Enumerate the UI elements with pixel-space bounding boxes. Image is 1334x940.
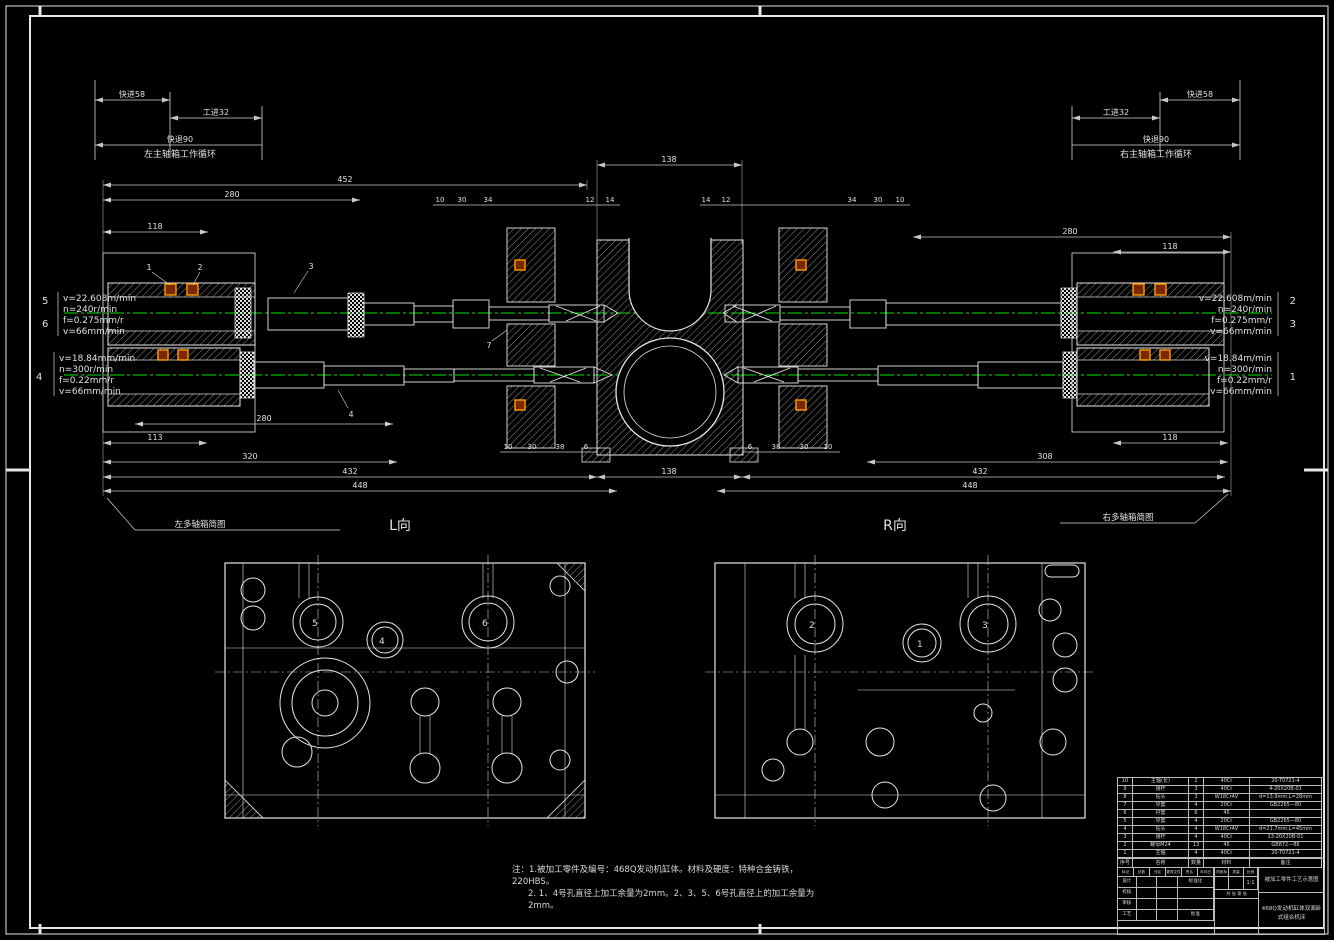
cad-drawing-sheet: 快进58 工进32 快退90 左主轴箱工作循环 快进58 工进32 快退90 右…: [0, 0, 1334, 940]
part-no: 3: [1118, 834, 1133, 842]
index-label-6: 6: [42, 319, 48, 330]
mark-cell: 更改文件号: [1166, 868, 1182, 876]
part-material: 45: [1204, 810, 1250, 818]
part-name: 主轴: [1133, 850, 1189, 858]
cycle-left-fast-forward: 快进58: [119, 89, 145, 99]
scale-label: 比例: [1244, 868, 1258, 876]
part-material: 20Cr: [1204, 818, 1250, 826]
param-line: v=22.608m/min: [1199, 294, 1272, 304]
params-right-lower: 1 v=18.84m/min n=300r/min f=0.22mm/r v=6…: [1205, 352, 1296, 397]
bearing-mark: [796, 400, 806, 410]
dim-448: 448: [352, 481, 367, 490]
part-remark: d=13.9mm,L=28mm: [1250, 794, 1322, 802]
cycle-right-work-feed: 工进32: [1103, 108, 1129, 117]
part-material: 20Cr: [1204, 802, 1250, 810]
part-no: 10: [1118, 778, 1133, 786]
bearing-mark: [1155, 284, 1166, 295]
bearing-mark: [1140, 350, 1150, 360]
dim-cluster: 6: [584, 443, 589, 451]
section-view-left: 5 4 6: [215, 555, 595, 826]
dim-452: 452: [337, 175, 352, 184]
part-remark: 20-T0721-4: [1250, 850, 1322, 858]
sig-label: 校核: [1118, 888, 1137, 898]
part-qty: 4: [1189, 850, 1204, 858]
part-remark: GB872—86: [1250, 842, 1322, 850]
dim-cluster: 38: [556, 443, 565, 451]
dim-cluster: 30: [528, 443, 537, 451]
part-name: 接杆: [1133, 786, 1189, 794]
param-line: f=0.275mm/r: [63, 316, 124, 326]
hole-label-6: 6: [482, 619, 488, 629]
part-remark: 4-20X20B-01: [1250, 786, 1322, 794]
dim-cluster: 10: [504, 443, 513, 451]
header-no: 序号: [1118, 859, 1133, 868]
part-name: 螺母M24: [1133, 842, 1189, 850]
param-line: v=66mm/min: [59, 387, 121, 397]
dim-cluster: 10: [824, 443, 833, 451]
bearing-mark: [178, 350, 188, 360]
bearing-mark: [158, 350, 168, 360]
part-qty: 2: [1189, 778, 1204, 786]
bearing-mark: [1160, 350, 1170, 360]
cycle-right-caption: 右主轴箱工作循环: [1120, 148, 1192, 160]
param-line: f=0.22mm/r: [59, 376, 114, 386]
mark-cell: 处数: [1134, 868, 1150, 876]
dim-cluster: 12: [722, 196, 731, 204]
param-line: v=18.84m/min: [1205, 354, 1272, 364]
scale-area: 阶段标记 质量 比例 1:1 共 张 第 张: [1215, 868, 1259, 934]
dim-cluster: 10: [896, 196, 905, 204]
param-line: n=300r/min: [59, 365, 113, 375]
sig-label: 工艺: [1118, 910, 1137, 920]
leader-label-1: 1: [146, 263, 151, 272]
param-line: n=240r/min: [1218, 305, 1272, 315]
dim-cluster: 12: [586, 196, 595, 204]
part-no: 4: [1118, 826, 1133, 834]
left-box-caption: 左多轴箱简图: [174, 519, 225, 530]
part-material: 40Cr: [1204, 786, 1250, 794]
dim-138-top: 138: [661, 155, 676, 164]
view-label-L: L向: [389, 518, 411, 534]
leader-label-2: 2: [197, 263, 202, 272]
dim-cluster: 34: [484, 196, 493, 204]
dim-320: 320: [242, 452, 257, 461]
note-line-1: 注：1.被加工零件及编号：468Q发动机缸体。材料及硬度：特种合金铸铁，220H…: [512, 864, 832, 888]
part-no: 6: [1118, 810, 1133, 818]
part-qty: 13: [1189, 842, 1204, 850]
param-line: n=300r/min: [1218, 365, 1272, 375]
part-remark: [1250, 810, 1322, 818]
dim-448r: 448: [962, 481, 977, 490]
dim-280r: 280: [1062, 227, 1077, 236]
param-line: v=66mm/min: [63, 327, 125, 337]
cycle-left-work-feed: 工进32: [203, 108, 229, 117]
sig-label: 审核: [1118, 899, 1137, 909]
workpiece-bore: [616, 338, 724, 446]
right-box-caption: 右多轴箱简图: [1102, 512, 1153, 523]
part-remark: GB2265—80: [1250, 802, 1322, 810]
bearing-mark: [165, 284, 176, 295]
cycle-right-fast-forward: 快进58: [1187, 89, 1213, 99]
dim-280: 280: [224, 190, 239, 199]
param-line: v=66mm/min: [1210, 327, 1272, 337]
drawing-title-line1: 被加工零件工艺示意图: [1259, 868, 1324, 893]
dim-308: 308: [1037, 452, 1052, 461]
mark-cell: 签名: [1182, 868, 1198, 876]
mass-label: 质量: [1229, 868, 1243, 876]
work-cycle-left: 快进58 工进32 快退90 左主轴箱工作循环: [95, 80, 262, 160]
part-name: 钻头: [1133, 794, 1189, 802]
dim-cluster: 38: [772, 443, 781, 451]
part-qty: 4: [1189, 826, 1204, 834]
dim-432r: 432: [972, 467, 987, 476]
part-no: 9: [1118, 786, 1133, 794]
part-no: 7: [1118, 802, 1133, 810]
parts-list-header: 序号 名称 数量 材料 备注: [1117, 858, 1325, 868]
fixture-plate-left: [507, 228, 555, 448]
part-qty: 3: [1189, 794, 1204, 802]
dim-118: 118: [147, 222, 162, 231]
part-no: 8: [1118, 794, 1133, 802]
part-remark: GB2265—80: [1250, 818, 1322, 826]
bearing-mark: [515, 400, 525, 410]
bearing-mark: [515, 260, 525, 270]
part-material: 45: [1204, 842, 1250, 850]
part-material: W18Cr4V: [1204, 826, 1250, 834]
part-material: W18Cr4V: [1204, 794, 1250, 802]
param-line: f=0.22mm/r: [1217, 376, 1272, 386]
work-cycle-right: 快进58 工进32 快退90 右主轴箱工作循环: [1072, 80, 1240, 160]
workpiece-cylinder-block: [582, 238, 758, 462]
part-qty: 3: [1189, 786, 1204, 794]
index-label-5: 5: [42, 296, 48, 307]
part-material: 40Cr: [1204, 834, 1250, 842]
params-right-upper: 2 3 v=22.608m/min n=240r/min f=0.275mm/r…: [1199, 292, 1296, 337]
hole-label-3: 3: [982, 621, 988, 631]
sig-label: 标准化: [1178, 877, 1214, 887]
fixture-plate-right: [779, 228, 827, 448]
part-no: 1: [1118, 850, 1133, 858]
dim-138-bottom: 138: [661, 467, 676, 476]
dim-cluster: 34: [848, 196, 857, 204]
sheet-count: 共 张 第 张: [1215, 890, 1258, 899]
mark-cell: 年月日: [1198, 868, 1214, 876]
params-left-upper: 5 6 v=22.608m/min n=240r/min f=0.275mm/r…: [42, 292, 136, 337]
part-remark: d=21.7mm,L=45mm: [1250, 826, 1322, 834]
hole-label-4: 4: [379, 637, 385, 647]
part-name: 导套: [1133, 802, 1189, 810]
title-block-main: 标记 处数 分区 更改文件号 签名 年月日 设计标准化 校核 审核 工艺批准 阶…: [1117, 868, 1325, 935]
bearing-mark: [187, 284, 198, 295]
part-remark: 13-20X20B-01: [1250, 834, 1322, 842]
part-material: 40Cr: [1204, 778, 1250, 786]
header-qty: 数量: [1189, 859, 1204, 868]
param-line: v=18.84mm/min: [59, 354, 135, 364]
dim-113: 113: [147, 433, 162, 442]
dim-280b: 280: [256, 414, 271, 423]
cycle-left-fast-return: 快退90: [167, 134, 193, 144]
scale-value: 1:1: [1244, 877, 1258, 889]
note-line-2: 2. 1、4号孔直径上加工余量为2mm。2、3、5、6号孔直径上的加工余量为2m…: [512, 888, 832, 912]
workpiece-u-opening: [629, 238, 711, 331]
leader-label-4: 4: [348, 410, 353, 419]
part-name: 接杆: [1133, 834, 1189, 842]
process-notes: 注：1.被加工零件及编号：468Q发动机缸体。材料及硬度：特种合金铸铁，220H…: [512, 864, 832, 912]
header-material: 材料: [1204, 859, 1250, 868]
part-name: 主轴(长): [1133, 778, 1189, 786]
cycle-right-fast-return: 快退90: [1143, 134, 1169, 144]
dim-cluster: 30: [458, 196, 467, 204]
index-label-2: 2: [1290, 296, 1296, 307]
view-label-R: R向: [883, 518, 907, 534]
title-block: 10主轴(长)240Cr20-T0721-4 9接杆340Cr4-20X20B-…: [1117, 777, 1325, 935]
header-remark: 备注: [1250, 859, 1322, 868]
part-qty: 4: [1189, 802, 1204, 810]
leader-caption-right: 右多轴箱简图: [1060, 494, 1228, 523]
dim-432: 432: [342, 467, 357, 476]
dim-cluster: 30: [874, 196, 883, 204]
index-label-1: 1: [1290, 372, 1296, 383]
part-material: 40Cr: [1204, 850, 1250, 858]
hole-label-1: 1: [917, 640, 923, 650]
part-no: 5: [1118, 818, 1133, 826]
hole-label-5: 5: [312, 619, 318, 629]
part-no: 2: [1118, 842, 1133, 850]
drawing-title-area: 被加工零件工艺示意图 468Q发动机缸体双面卧式组合机床: [1259, 868, 1325, 934]
param-line: f=0.275mm/r: [1211, 316, 1272, 326]
sig-label: 设计: [1118, 877, 1137, 887]
part-name: 导套: [1133, 818, 1189, 826]
sig-label: 批准: [1178, 910, 1214, 920]
hole-label-2: 2: [809, 621, 815, 631]
header-name: 名称: [1133, 859, 1189, 868]
section-view-right: 2 1 3: [705, 555, 1095, 826]
dim-cluster: 10: [436, 196, 445, 204]
dim-118r: 118: [1162, 242, 1177, 251]
part-name: 钻头: [1133, 826, 1189, 834]
stage-label: 阶段标记: [1215, 868, 1229, 876]
part-qty: 4: [1189, 818, 1204, 826]
leader-label-7: 7: [486, 341, 491, 350]
dim-cluster: 14: [702, 196, 711, 204]
part-qty: 4: [1189, 834, 1204, 842]
param-line: n=240r/min: [63, 305, 117, 315]
param-line: v=22.608m/min: [63, 294, 136, 304]
dim-cluster: 14: [606, 196, 615, 204]
drawing-title-line2: 468Q发动机缸体双面卧式组合机床: [1259, 893, 1324, 934]
cycle-left-caption: 左主轴箱工作循环: [144, 148, 216, 160]
mark-cell: 分区: [1150, 868, 1166, 876]
part-qty: 6: [1189, 810, 1204, 818]
dim-118rb: 118: [1162, 433, 1177, 442]
bearing-mark: [796, 260, 806, 270]
leader-label-3: 3: [308, 262, 313, 271]
mark-cell: 标记: [1118, 868, 1134, 876]
part-name: 衬套: [1133, 810, 1189, 818]
bearing-mark: [1133, 284, 1144, 295]
param-line: v=66mm/min: [1210, 387, 1272, 397]
part-remark: 20-T0721-4: [1250, 778, 1322, 786]
index-label-4: 4: [36, 372, 42, 383]
signature-area: 标记 处数 分区 更改文件号 签名 年月日 设计标准化 校核 审核 工艺批准: [1118, 868, 1215, 934]
dim-cluster: 30: [800, 443, 809, 451]
dim-cluster: 6: [748, 443, 753, 451]
index-label-3: 3: [1290, 319, 1296, 330]
parts-list: 10主轴(长)240Cr20-T0721-4 9接杆340Cr4-20X20B-…: [1117, 777, 1325, 858]
leader-caption-left: 左多轴箱简图: [107, 498, 340, 530]
